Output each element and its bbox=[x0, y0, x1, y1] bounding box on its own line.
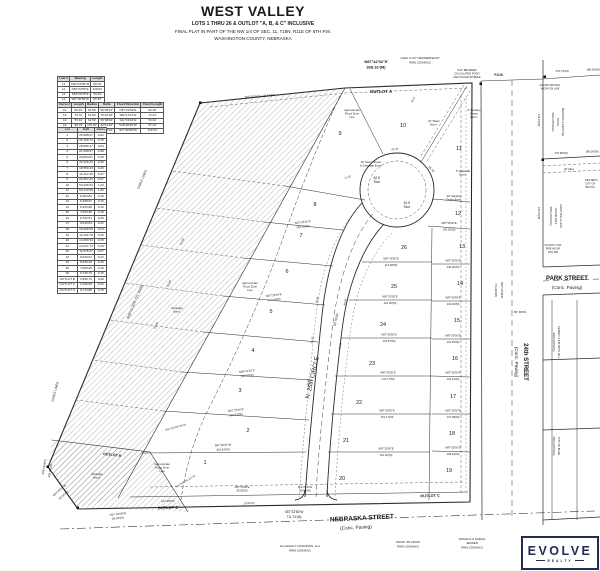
plat-label: 114.08'(M) bbox=[385, 263, 398, 267]
plat-label: 22 bbox=[356, 400, 362, 406]
plat-label: 176.98'(M) bbox=[554, 151, 567, 155]
plat-label: 204.81'(M) bbox=[229, 412, 243, 418]
plat-label: 180.00'(M) bbox=[585, 150, 598, 154]
plat-label: N87°30'30"E bbox=[380, 371, 395, 375]
plat-label: 31.92' bbox=[309, 336, 314, 344]
plat-label: Rad. bbox=[404, 205, 411, 209]
plat-label: Esmt. bbox=[430, 123, 437, 127]
plat-label: N87°30'30"E bbox=[381, 333, 396, 337]
plat-label: 86.35'(M) bbox=[112, 515, 124, 520]
plat-label: 58.00'(M) bbox=[237, 489, 248, 493]
plat-label: Rad. bbox=[374, 180, 381, 184]
plat-label: RWN (ZONING) bbox=[552, 437, 556, 456]
plat-label: NOLTE bbox=[556, 118, 560, 127]
plat-label: 142.31'(M) bbox=[537, 114, 541, 126]
plat-label: 18 bbox=[449, 431, 455, 437]
plat-label: 368.16'(M) bbox=[366, 65, 386, 70]
logo-rule-left bbox=[536, 560, 545, 561]
plat-label: 154.36'(M) bbox=[296, 224, 310, 230]
plat-label: 128.94'(M) bbox=[447, 452, 460, 456]
plat-label: S06°26'46"E bbox=[41, 459, 48, 475]
plat-label: Esmt. bbox=[470, 115, 477, 119]
plat-label: N87°30'30"E bbox=[445, 371, 460, 375]
plat-label: 1 bbox=[203, 460, 206, 466]
plat-label: 24.50' bbox=[314, 295, 319, 303]
plat-label: N87°30'30"E bbox=[445, 409, 460, 413]
plat-label: 16 bbox=[452, 356, 458, 362]
logo-wordmark: EVOLVE bbox=[528, 544, 593, 558]
plat-label: N. 25th CIRCLE bbox=[305, 356, 321, 399]
outlot-hatch-areas bbox=[48, 88, 345, 512]
plat-label: 10 bbox=[400, 123, 406, 129]
plat-label: 125.21'(M) bbox=[447, 377, 460, 381]
plat-label: CABLE LINES bbox=[50, 381, 59, 402]
plat-label: CABLE LINES bbox=[136, 169, 148, 189]
plat-label: 12 bbox=[455, 211, 461, 217]
plat-label: N87°30'30"E bbox=[378, 447, 393, 451]
plat-label: Esmt. bbox=[459, 173, 466, 177]
plat-label: N02°29'33"E 55.48' bbox=[165, 423, 187, 432]
plat-label: DEXTER'S bbox=[585, 178, 598, 182]
plat-label: 7 bbox=[299, 233, 302, 239]
plat-label: 176.74'(M) bbox=[555, 69, 568, 73]
plat-label: 607.28'(M) bbox=[161, 499, 174, 503]
plat-label: 190.35'(M) bbox=[240, 373, 254, 379]
plat-label: BRANDON & KRISTINE bbox=[561, 108, 565, 136]
plat-label: 13 bbox=[459, 244, 465, 250]
plat-label: 130.00'(M) bbox=[443, 228, 456, 232]
plat-label: 8 bbox=[313, 202, 316, 208]
plat-label: CARL & IVY NENNERFELDT bbox=[400, 56, 440, 60]
plat-label: N87°30'30"E bbox=[379, 409, 394, 413]
logo-subtitle-text: REALTY bbox=[547, 559, 572, 563]
plat-label: N87°30'30"E bbox=[445, 296, 460, 300]
plat-label: 124.35'(M) bbox=[384, 301, 397, 305]
plat-label: 40.36' bbox=[337, 342, 342, 350]
plat-label: 130.00'(M) bbox=[447, 265, 460, 269]
plat-label: VANGIE PELZ bbox=[554, 208, 558, 225]
plat-label: 6 bbox=[285, 269, 288, 275]
plat-label: (Conc. Paving) bbox=[552, 285, 583, 290]
plat-label: N87°30'30"E bbox=[445, 259, 460, 263]
plat-label: CITY OF BLAIR bbox=[557, 437, 561, 456]
plat-label: 5 bbox=[269, 309, 272, 315]
plat-label: N87°30'30"E bbox=[445, 334, 460, 338]
plat-label: 17.15' bbox=[344, 174, 352, 180]
logo-subtitle: REALTY bbox=[536, 559, 583, 563]
plat-label: 2 bbox=[246, 428, 249, 434]
plat-label: 19 bbox=[446, 468, 452, 474]
plat-label: "BLOCK bbox=[585, 185, 595, 189]
plat-label: 123.35'(M) bbox=[447, 340, 460, 344]
plat-label: Sewer Esmt. bbox=[446, 198, 462, 202]
plat-label: RWN (ZONING) bbox=[289, 549, 311, 553]
plat-label: 180.00'(M) bbox=[586, 68, 599, 72]
plat-label: 20' Alley bbox=[564, 167, 575, 171]
plat-label: N87°30'30"E bbox=[445, 446, 460, 450]
plat-label: 62.5' bbox=[410, 95, 417, 103]
plat-label: 127.08'(M) bbox=[447, 415, 460, 419]
plat-label: 4 bbox=[251, 348, 254, 354]
plat-label: 76.76' bbox=[391, 147, 399, 152]
plat-label: N87°42'02"E bbox=[364, 59, 388, 64]
plat-label: 132.49'(M) bbox=[447, 302, 460, 306]
plat-label: 24th STREET bbox=[522, 343, 528, 381]
plat-label: Line bbox=[349, 115, 355, 119]
plat-label: RWN (ZONING) bbox=[397, 545, 419, 549]
plat-label: PARK STREET bbox=[546, 276, 588, 282]
logo-rule-right bbox=[575, 560, 584, 561]
plat-label: OUTLOT C bbox=[158, 505, 179, 511]
plat-label: S02°33'59"E bbox=[500, 282, 504, 299]
plat-label: W/CAP ON LINE bbox=[541, 88, 560, 91]
plat-label: (Conc. Paving) bbox=[340, 524, 372, 532]
plat-label: 50' ROW bbox=[333, 313, 340, 326]
plat-label: 21 bbox=[343, 438, 349, 444]
plat-label: RWN (ZONING) bbox=[549, 207, 553, 226]
plat-label: OUTLOT A bbox=[370, 89, 393, 94]
plat-label: N87°30'30"E bbox=[382, 295, 397, 299]
plat-label: 711.69'(M) bbox=[494, 283, 498, 297]
plat-label: (Conc. Paving) bbox=[514, 347, 519, 378]
plat-label: P.O.B. bbox=[494, 73, 503, 77]
plat-label: RWN (ZONING) bbox=[552, 333, 556, 352]
plat-label: S02°26'04"E bbox=[298, 485, 313, 489]
plat-label: 174.04'(M) bbox=[267, 297, 281, 303]
plat-label: N87°30'58"E bbox=[235, 485, 250, 489]
plat-label: N87°30'30"E bbox=[441, 221, 456, 225]
plat-label: 25 bbox=[391, 284, 397, 290]
evolve-realty-logo: EVOLVE REALTY bbox=[521, 536, 599, 570]
plat-label: N87°30'30"E bbox=[383, 257, 398, 261]
plat-label: 10.00'(M) bbox=[243, 501, 254, 505]
plat-label: LARRY BILL & LETA bbox=[559, 204, 563, 228]
plat-label: 17 bbox=[450, 394, 456, 400]
plat-label: 20 bbox=[339, 476, 345, 482]
plat-label: 151.17'(M) bbox=[381, 415, 394, 419]
plat-label: 316.24'(M) bbox=[216, 447, 229, 451]
plat-label: RWN (ZONING) bbox=[409, 61, 431, 65]
plat-label: Line bbox=[159, 469, 165, 473]
plat-label: 26 bbox=[401, 245, 407, 251]
plat-label: 80' ROW bbox=[514, 310, 526, 314]
plat-label: Esmt. bbox=[93, 476, 100, 480]
plat-label: 711.74'(M) bbox=[287, 515, 302, 519]
plat-label: JENSEN bbox=[466, 541, 478, 545]
plat-label: 141.77'(M) bbox=[382, 377, 395, 381]
plat-label: 11 bbox=[456, 146, 462, 152]
plat-label: RWN (ZONING) bbox=[551, 113, 555, 132]
plat-label: RWN (ZONING) bbox=[461, 546, 483, 550]
plat-label: AND FOUND SPINDLE bbox=[453, 75, 481, 79]
plat-label: S87°33'56"W bbox=[285, 510, 304, 514]
plat-sheet: WEST VALLEY LOTS 1 THRU 26 & OUTLOT "A, … bbox=[0, 0, 600, 571]
plat-label: AV LEGACY HOLDINGS, LLC bbox=[280, 544, 321, 548]
plat-label: NEBRASKA STREET bbox=[330, 513, 394, 523]
plat-label: OUTLOT C bbox=[420, 494, 440, 499]
plat-label: 3 bbox=[238, 388, 241, 394]
plat-label: 15 bbox=[454, 318, 460, 324]
plat-label: 55.42' bbox=[428, 165, 436, 173]
plat-label: 134.67'(M) bbox=[383, 339, 396, 343]
plat-label: Esmt. bbox=[173, 310, 180, 314]
plat-label: 45.02' bbox=[342, 297, 347, 305]
plat-label: & Drainage Esmt. bbox=[360, 164, 382, 168]
plat-label: Line bbox=[247, 288, 253, 292]
plat-label: 9 bbox=[338, 131, 341, 137]
plat-label: 8.32' BETWEEN bbox=[457, 68, 476, 72]
plat-label: 161.02'(M) bbox=[380, 453, 393, 457]
plat-drawing: N87°42'02"E368.16'(M)OUTLOT AN87°43'55"E… bbox=[0, 0, 600, 571]
plat-label: ON LINE bbox=[548, 251, 558, 254]
plat-label: 24 bbox=[380, 322, 386, 328]
plat-label: 23 bbox=[369, 361, 375, 367]
plat-label: CITY OF bbox=[585, 182, 596, 186]
plat-label: 58.00'(M) bbox=[300, 489, 311, 493]
plat-label: CALCULATED POINT bbox=[454, 72, 480, 76]
plat-label: GILBERT & KATHRYN HILL bbox=[557, 326, 561, 359]
plat-label: 140.31'(M) bbox=[537, 207, 541, 219]
plat-label: PHILIP JR CRAIG bbox=[396, 540, 421, 544]
plat-label: 14 bbox=[457, 281, 463, 287]
